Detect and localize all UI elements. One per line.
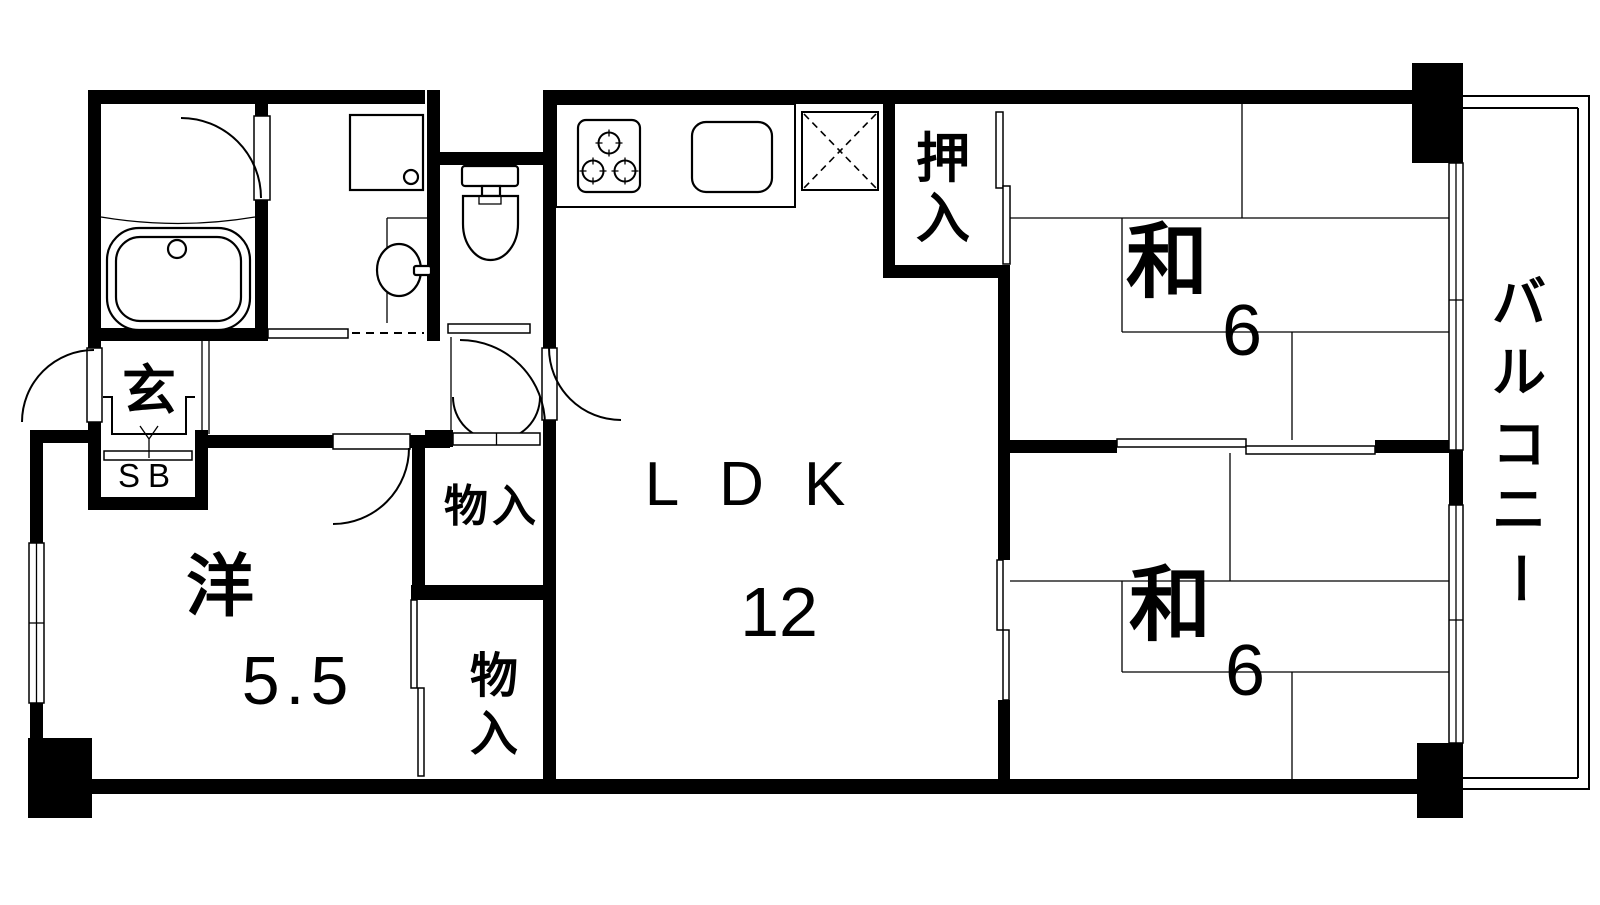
ldk-japanese-fusuma-panel1 bbox=[997, 560, 1003, 630]
japanese-rooms-fusuma-panel2 bbox=[1246, 446, 1375, 454]
balcony-label-char3: コ bbox=[1492, 415, 1546, 475]
japanese-upper-label: 和 bbox=[1126, 217, 1208, 308]
bathroom-door-leaf bbox=[254, 116, 270, 200]
japanese-lower-area: 6 bbox=[1225, 631, 1265, 711]
entrance-door-swing bbox=[22, 350, 94, 422]
western-room-area: 5.5 bbox=[242, 643, 355, 719]
storage-sliding-door-panel2 bbox=[418, 688, 424, 776]
refrigerator bbox=[802, 112, 878, 190]
oshiire-label-char2: 入 bbox=[916, 189, 970, 249]
pillar-bottom-left bbox=[28, 738, 92, 818]
storage-upper-label: 物入 bbox=[444, 482, 540, 531]
ldk-area: 12 bbox=[740, 573, 818, 651]
toilet-tank bbox=[462, 166, 518, 186]
bathtub-drain-icon bbox=[168, 240, 186, 258]
ldk-label: LDK bbox=[645, 450, 886, 519]
shoebox-label: SB bbox=[118, 457, 178, 494]
washing-machine bbox=[350, 115, 423, 190]
oshiire-label-char1: 押 bbox=[916, 129, 970, 189]
pillar-bottom-right bbox=[1417, 743, 1463, 818]
pillar-top-right bbox=[1412, 63, 1463, 163]
balcony-label-char5: ー bbox=[1489, 551, 1549, 605]
toilet bbox=[462, 166, 518, 260]
western-room-door-swing bbox=[333, 448, 409, 524]
washbasin-tap-icon bbox=[414, 266, 431, 275]
balcony-label-char1: バ bbox=[1492, 273, 1546, 333]
washbasin bbox=[377, 218, 431, 323]
oshiire-fusuma-panel2 bbox=[1003, 186, 1010, 264]
bathtub bbox=[101, 217, 255, 330]
door-swings bbox=[22, 118, 621, 524]
toilet-pipe bbox=[482, 186, 500, 196]
balcony-label-char2: ル bbox=[1492, 343, 1546, 403]
storage-sliding-door-panel1 bbox=[411, 600, 417, 688]
tatami-upper bbox=[1010, 104, 1449, 440]
storage-lower-label-char2: 入 bbox=[470, 708, 518, 761]
western-room-label: 洋 bbox=[186, 549, 254, 625]
passage-door-swing bbox=[460, 340, 545, 425]
entrance-label: 玄 bbox=[122, 361, 176, 421]
toilet-bowl bbox=[463, 196, 518, 260]
floor-plan-page: LDK 12 洋 5.5 和 6 和 6 押 入 物入 物 入 玄 SB バ ル… bbox=[0, 0, 1600, 900]
sink bbox=[692, 122, 772, 192]
western-room-door-leaf bbox=[333, 434, 410, 449]
japanese-lower-label: 和 bbox=[1129, 560, 1211, 651]
washroom-sliding-door bbox=[268, 329, 348, 338]
entrance-door-leaf bbox=[87, 348, 102, 422]
partition-lines bbox=[202, 337, 451, 434]
oshiire-fusuma-panel1 bbox=[996, 112, 1003, 188]
bathroom-door-swing bbox=[181, 118, 261, 198]
floor-plan: LDK 12 洋 5.5 和 6 和 6 押 入 物入 物 入 玄 SB バ ル… bbox=[0, 0, 1600, 900]
balcony-label-char4: ニ bbox=[1492, 480, 1546, 540]
tatami-lower bbox=[1010, 453, 1449, 779]
ldk-japanese-fusuma-panel2 bbox=[1003, 630, 1009, 700]
japanese-upper-area: 6 bbox=[1222, 291, 1262, 371]
kitchen-counter bbox=[556, 104, 795, 207]
storage-lower-label-char1: 物 bbox=[470, 650, 518, 703]
ldk-door-swing bbox=[549, 348, 621, 420]
toilet-sliding-door bbox=[448, 324, 530, 333]
japanese-rooms-fusuma-panel1 bbox=[1117, 439, 1246, 447]
